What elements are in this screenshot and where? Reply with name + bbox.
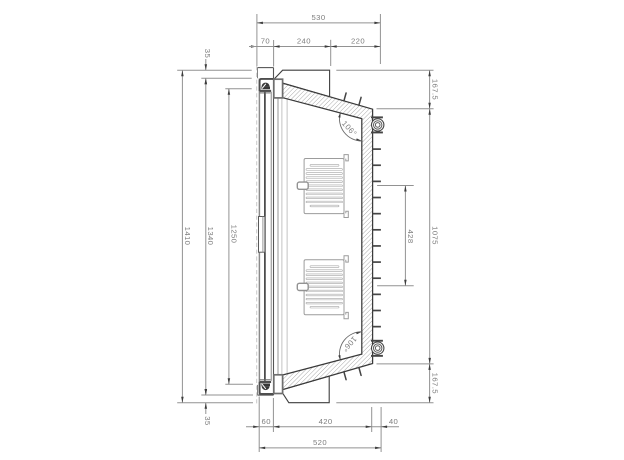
svg-text:420: 420 xyxy=(319,417,333,426)
svg-text:428: 428 xyxy=(406,229,415,243)
svg-text:1340: 1340 xyxy=(206,227,215,246)
svg-text:1410: 1410 xyxy=(183,227,192,246)
svg-text:520: 520 xyxy=(313,438,327,447)
svg-text:35: 35 xyxy=(203,416,212,425)
svg-text:70: 70 xyxy=(261,37,270,46)
svg-text:1075: 1075 xyxy=(431,226,440,245)
svg-text:220: 220 xyxy=(351,37,365,46)
svg-text:40: 40 xyxy=(389,417,398,426)
svg-text:240: 240 xyxy=(297,37,311,46)
svg-text:1250: 1250 xyxy=(229,225,238,244)
svg-text:167.5: 167.5 xyxy=(430,373,439,394)
svg-text:530: 530 xyxy=(311,13,325,22)
svg-text:167.5: 167.5 xyxy=(430,79,439,100)
svg-text:60: 60 xyxy=(262,417,271,426)
svg-text:35: 35 xyxy=(203,49,212,58)
